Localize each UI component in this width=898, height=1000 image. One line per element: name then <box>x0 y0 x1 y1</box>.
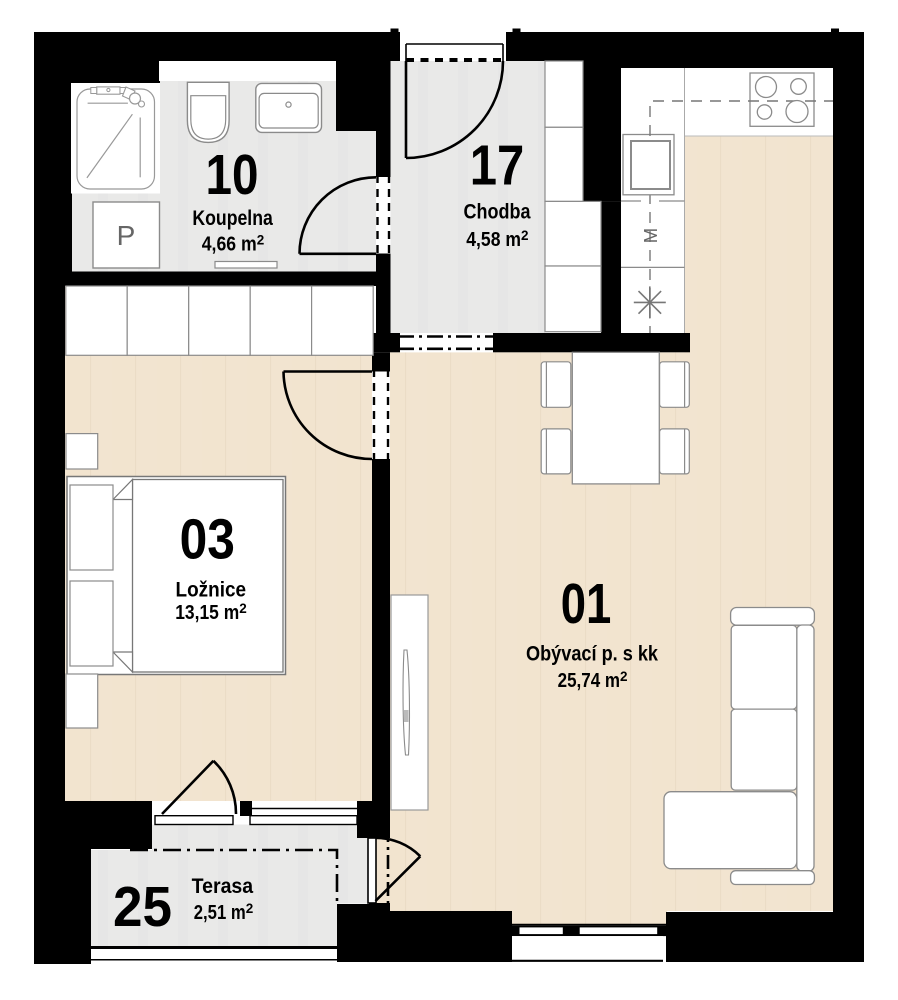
svg-text:Obývací p. s kk: Obývací p. s kk <box>526 642 658 666</box>
svg-text:Chodba: Chodba <box>464 200 531 224</box>
svg-text:25,74 m2: 25,74 m2 <box>558 669 628 692</box>
svg-text:Koupelna: Koupelna <box>192 206 273 230</box>
svg-text:13,15 m2: 13,15 m2 <box>175 601 247 624</box>
svg-text:10: 10 <box>206 143 259 206</box>
svg-text:Terasa: Terasa <box>192 874 254 898</box>
svg-text:25: 25 <box>113 875 172 938</box>
svg-text:01: 01 <box>561 572 612 635</box>
svg-text:03: 03 <box>180 508 235 571</box>
svg-text:4,66 m2: 4,66 m2 <box>202 233 265 256</box>
svg-text:P: P <box>117 220 136 251</box>
svg-text:2,51 m2: 2,51 m2 <box>194 901 254 924</box>
svg-text:Ložnice: Ložnice <box>176 578 247 602</box>
svg-text:17: 17 <box>470 134 525 197</box>
svg-text:4,58 m2: 4,58 m2 <box>466 228 528 251</box>
svg-text:M: M <box>640 228 661 243</box>
